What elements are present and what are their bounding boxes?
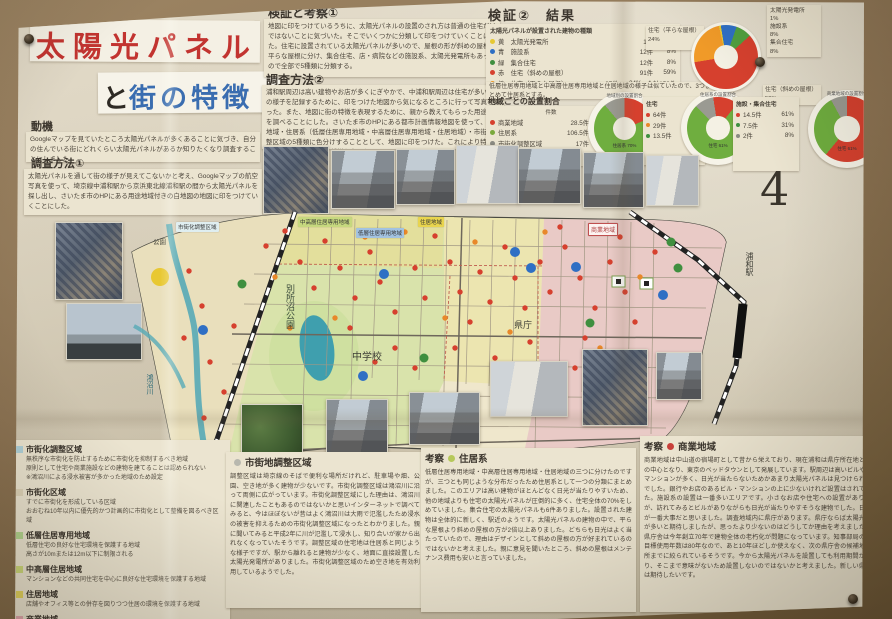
panel-dot — [379, 269, 389, 279]
panel-dot — [542, 229, 547, 234]
big-donut-right-legend: 太陽光発電所 1% 施設系 8% 集合住宅 8% — [767, 5, 821, 57]
commercial-stats-box: 施設・集合住宅 14.5件61% 7.5件31% 2件8% — [733, 97, 799, 171]
panel-dot — [272, 274, 277, 279]
table-row: 7.5件31% — [736, 121, 796, 130]
panel-dot — [432, 233, 437, 238]
push-pin — [755, 57, 765, 67]
panel-dot — [263, 243, 268, 248]
panel-dot — [577, 275, 582, 280]
zoning-legend: 市街化調整区域 無秩序な市街化を防止するために市街化を抑制するべき地域 原則とし… — [10, 440, 230, 619]
panel-dot — [231, 323, 236, 328]
photo-aerial — [55, 222, 123, 300]
photo-street — [326, 399, 388, 453]
section-bullet — [234, 459, 241, 466]
panel-dot — [337, 265, 342, 270]
discussion-jukyokei: 考察住居系 低層住居専用地域・中高層住居専用地域・住居地域の三つに分けたのですが… — [421, 448, 636, 612]
panel-dot — [522, 305, 527, 310]
zone-color-chip — [16, 489, 23, 496]
red-dot — [736, 113, 740, 117]
photo-building — [456, 145, 519, 204]
table-row: 緑 集合住宅12件8% — [490, 58, 676, 67]
map-label-konuma-river: 鴻沼川 — [144, 374, 154, 395]
panel-dot — [674, 264, 683, 273]
panel-dot — [507, 329, 512, 334]
stats-box-header: 施設・集合住宅 — [736, 99, 796, 108]
panel-dot — [201, 415, 206, 420]
panel-dot — [181, 335, 186, 340]
photo-building — [646, 155, 699, 206]
panel-dot — [392, 345, 397, 350]
panel-dot — [582, 335, 587, 340]
panel-dot — [526, 263, 536, 273]
commercial-donut-sticker: 商業地域の設置割合 住宅 61% — [808, 90, 886, 168]
donut-header: 住居系の設置割合 — [681, 92, 755, 98]
title-strip-2: と街の特徴 — [98, 71, 280, 113]
section-bullet — [667, 443, 674, 450]
photo-aerial — [582, 349, 648, 426]
panel-dot — [447, 259, 452, 264]
zone-color-chip — [16, 591, 23, 598]
panel-dot — [198, 325, 208, 335]
yellow-dot — [490, 39, 495, 44]
map-tag-shogyo: 商業地域 — [588, 223, 618, 236]
research-poster: 太陽光パネル と街の特徴 動機 Googleマップを見ていたところ太陽光パネルが… — [10, 0, 864, 619]
panel-dot — [452, 345, 457, 350]
table-row: 2件8% — [736, 131, 796, 140]
panel-dot — [527, 339, 532, 344]
photo-street — [396, 149, 455, 205]
poster-title-sub-prefix: と — [102, 83, 129, 113]
zone-color-chip — [16, 566, 23, 573]
panel-dot — [412, 265, 417, 270]
map-tag-jukyo: 住居地域 — [418, 217, 444, 227]
panel-dot — [311, 285, 316, 290]
green-dot — [646, 134, 650, 138]
method2-paragraph: 浦和駅周辺は高い建物やお店が多くにぎやかで、中浦和駅周辺は住宅が多い。街の様子を… — [262, 85, 504, 149]
panel-dot — [467, 319, 472, 324]
photo-street — [518, 148, 581, 204]
panel-dot — [457, 289, 462, 294]
panel-dot — [607, 259, 612, 264]
building-type-donut-chart — [694, 25, 758, 89]
panel-dot — [367, 249, 372, 254]
photo-street — [583, 152, 644, 208]
red-dot — [490, 120, 495, 125]
map-label-kencho: 県庁 — [514, 318, 532, 331]
panel-dot — [562, 244, 567, 249]
panel-dot — [221, 389, 226, 394]
panel-dot — [151, 268, 169, 286]
panel-dot — [442, 315, 447, 320]
poster-title-sub-main: 街の特徴 — [129, 83, 253, 114]
photo-street — [409, 392, 480, 445]
photo-street — [656, 352, 702, 400]
panel-dot — [637, 274, 642, 279]
panel-dot — [282, 228, 287, 233]
panel-dot — [547, 289, 552, 294]
photo-aerial — [263, 146, 329, 214]
map-tag-chousei: 市街化調整区域 — [176, 222, 219, 232]
gray-dot — [736, 134, 740, 138]
green-dot — [490, 60, 495, 65]
push-pin — [24, 34, 34, 44]
panel-dot — [332, 315, 337, 320]
section-bullet — [448, 455, 455, 462]
red-dot — [490, 70, 495, 75]
donut-header: 商業地域の設置割合 — [808, 91, 886, 97]
panel-dot — [199, 303, 204, 308]
map-tag-teiso: 低層住居専用地域 — [356, 228, 404, 238]
panel-dot — [297, 259, 302, 264]
legend-item: 低層住居専用地域 低層住宅の良好な住宅環境を保護する地域 高さが10mまたは12… — [16, 530, 224, 560]
panel-dot — [352, 295, 357, 300]
panel-dot — [557, 224, 562, 229]
panel-dot — [571, 262, 581, 272]
poster-title-main: 太陽光パネル — [30, 19, 260, 67]
donut-inner-label: 住宅 61% — [808, 146, 886, 152]
red-dot — [646, 113, 650, 117]
building-type-donut-sticker — [691, 22, 761, 92]
photo-building — [490, 361, 568, 417]
panel-dot — [472, 239, 477, 244]
panel-dot — [492, 355, 497, 360]
green-dot — [490, 130, 495, 135]
panel-dot — [412, 365, 417, 370]
commercial-donut-chart — [814, 96, 880, 162]
map-tag-chukoso: 中高層住居専用地域 — [298, 217, 352, 227]
verification1-paragraph: 地図に印をつけているうちに、太陽光パネルの設置のされ方は普通の住宅だけではないこ… — [264, 19, 500, 77]
zone-color-chip — [16, 532, 23, 539]
panel-dot — [502, 244, 507, 249]
map-label-junior-high: 中学校 — [352, 348, 382, 363]
panel-dot — [658, 290, 668, 300]
panel-dot — [477, 269, 482, 274]
green-dot — [736, 123, 740, 127]
corkboard-photo: 太陽光パネル と街の特徴 動機 Googleマップを見ていたところ太陽光パネルが… — [0, 0, 892, 619]
map-label-bessho-numa-park: 別所沼公園 — [284, 284, 297, 329]
blue-dot — [490, 49, 495, 54]
legend-item: 市街化調整区域 無秩序な市街化を防止するために市街化を抑制するべき地域 原則とし… — [16, 444, 224, 483]
table-row: 赤 住宅（斜めの屋根）91件59% — [490, 68, 676, 77]
panel-dot — [652, 249, 657, 254]
donut-inner-label: 住居系 70% — [588, 143, 661, 149]
discussion-chousei-kuiki: 市街地調整区域 調整区域は埼京線のそばで便利な場所だけれど、駐車場や畑、公園、空… — [226, 452, 424, 608]
panel-dot — [617, 234, 622, 239]
panel-dot — [592, 305, 597, 310]
legend-item: 中高層住居地域 マンションなどの共同住宅を中心に良好な住宅環境を保護する地域 — [16, 564, 224, 585]
panel-dot — [347, 325, 352, 330]
legend-item: 市街化区域 すでに市街化を形成している区域 おおむね10年以内に優先的かつ計画的… — [16, 487, 224, 526]
results-heading: 検証② 結果 — [488, 5, 576, 24]
discussion-shogyo-chiiki: 考察商業地域 商業地域は中山道の宿場町として昔から栄えており、現在浦和は県庁所在… — [640, 436, 888, 612]
panel-dot — [510, 247, 520, 257]
map-label-park: 公園 — [153, 236, 166, 246]
panel-dot — [667, 238, 676, 247]
panel-dot — [358, 371, 368, 381]
panel-dot — [377, 279, 382, 284]
panel-dot — [422, 295, 427, 300]
panel-dot — [487, 299, 492, 304]
panel-dot — [207, 359, 212, 364]
panel-dot — [632, 319, 637, 324]
panel-dot — [512, 275, 517, 280]
panel-dot — [622, 289, 627, 294]
title-strip-1: 太陽光パネル — [30, 19, 260, 63]
panel-dot — [586, 319, 595, 328]
zone-color-chip — [16, 446, 23, 453]
page-number: 4 — [760, 162, 789, 216]
panel-dot — [392, 309, 397, 314]
panel-dot — [186, 268, 191, 273]
panel-dot — [322, 238, 327, 243]
donut-inner-label: 住宅 61% — [681, 143, 755, 149]
photo-street — [331, 150, 395, 209]
legend-item: 商業地域 店やその他の業務の利便性を高めるために指定された地域 人を集め店舗を誘… — [16, 614, 224, 619]
panel-dot — [572, 365, 577, 370]
station-block — [737, 304, 743, 358]
donut-header: 地域別の設置割合 — [588, 93, 661, 99]
panel-dot — [537, 259, 542, 264]
panel-dot — [238, 280, 247, 289]
push-pin — [848, 594, 858, 604]
table-row: 14.5件61% — [736, 110, 796, 119]
orange-dot — [646, 123, 650, 127]
panel-dot — [420, 354, 429, 363]
legend-item: 住居地域 店舗やオフィス等との併存を図りつつ住居の環境を保護する地域 — [16, 589, 224, 610]
map-label-urawa-station: 浦和駅 — [744, 252, 755, 276]
